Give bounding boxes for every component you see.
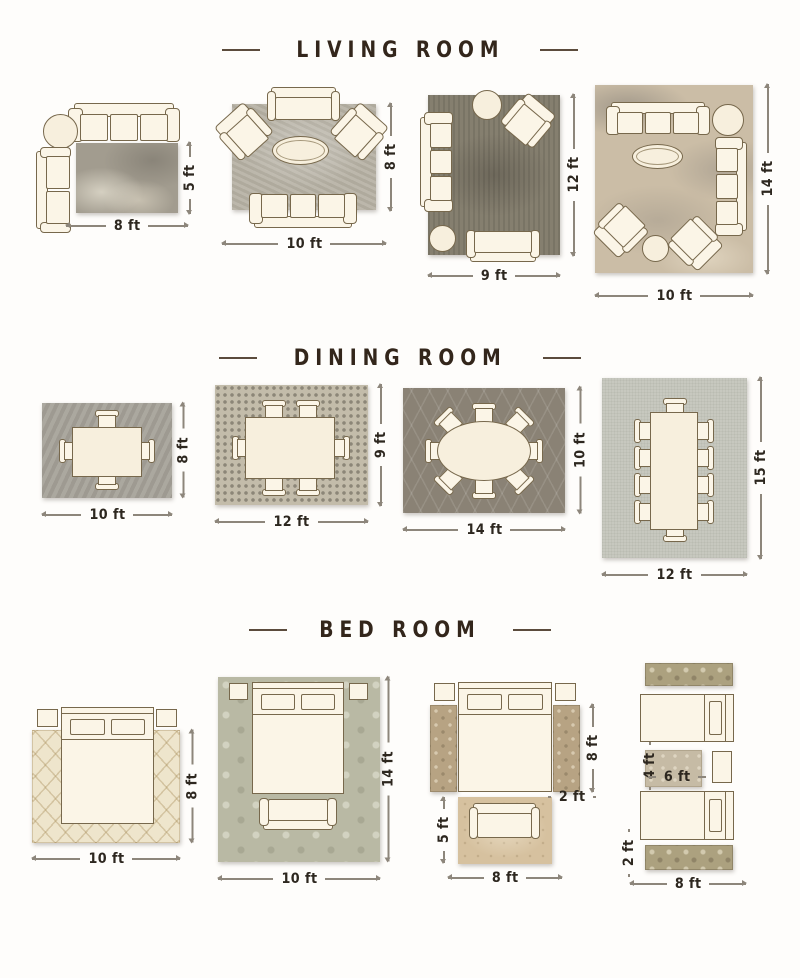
oval-coffee-table: [272, 136, 329, 165]
pillow: [301, 694, 335, 710]
bed-room-heading: BED ROOM: [319, 618, 480, 643]
width-dimension: 12 ft: [215, 512, 368, 532]
sofa: [714, 137, 747, 236]
twin-bed: [640, 791, 734, 840]
width-dimension: 14 ft: [403, 520, 565, 540]
headboard: [725, 695, 733, 741]
runner-width-dimension: 2 ft: [619, 837, 639, 877]
dining-table: [245, 417, 335, 479]
pillow: [508, 694, 543, 710]
pillow: [261, 694, 295, 710]
bed: [252, 682, 344, 794]
nightstand: [37, 709, 58, 727]
dining-table: [650, 412, 698, 530]
accent-rug-width-dimension: 6 ft: [648, 767, 706, 787]
bench: [469, 803, 540, 840]
height-dimension: 5 ft: [180, 142, 200, 214]
width-dimension: 10 ft: [222, 234, 386, 254]
sofa: [68, 103, 180, 143]
runner-length-dimension: 8 ft: [630, 874, 746, 894]
pillow: [467, 694, 502, 710]
title-dash-right: [513, 629, 551, 631]
height-dimension: 14 ft: [379, 677, 399, 862]
bed: [61, 707, 154, 824]
nightstand: [349, 683, 368, 700]
section-title-dining: DINING ROOM: [0, 344, 800, 372]
title-dash-right: [543, 357, 581, 359]
section-title-living: LIVING ROOM: [0, 36, 800, 64]
pillow: [70, 719, 105, 735]
nightstand: [555, 683, 576, 701]
height-dimension: 12 ft: [564, 94, 584, 256]
title-dash-left: [222, 49, 260, 51]
round-side-table: [712, 104, 744, 136]
width-dimension: 10 ft: [218, 869, 380, 889]
height-dimension: 8 ft: [174, 403, 194, 498]
height-dimension: 8 ft: [381, 103, 401, 211]
blanket-edge: [704, 792, 705, 839]
nightstand: [229, 683, 248, 700]
sofa: [420, 112, 454, 212]
title-dash-left: [219, 357, 257, 359]
height-dimension: 15 ft: [751, 377, 771, 559]
width-dimension: 10 ft: [42, 505, 172, 525]
loveseat: [466, 229, 540, 262]
blanket-edge: [704, 695, 705, 741]
living-room-heading: LIVING ROOM: [296, 38, 504, 63]
runner-length-dimension: 8 ft: [583, 704, 603, 792]
accent-rug-height-dimension: 5 ft: [434, 797, 454, 863]
sofa: [267, 87, 340, 122]
pillow: [709, 799, 722, 833]
rug-size-guide-infographic: LIVING ROOM 8 ft 5 ft: [0, 0, 800, 978]
sofa: [606, 102, 710, 136]
bed: [458, 682, 552, 792]
width-dimension: 10 ft: [595, 286, 753, 306]
runner-rug: [430, 705, 457, 792]
height-dimension: 9 ft: [371, 384, 391, 506]
round-side-table: [472, 90, 502, 120]
height-dimension: 14 ft: [758, 84, 778, 274]
nightstand: [156, 709, 177, 727]
nightstand: [434, 683, 455, 701]
title-dash-right: [540, 49, 578, 51]
oval-dining-table: [437, 421, 531, 481]
area-rug: [76, 143, 178, 213]
dining-room-heading: DINING ROOM: [294, 346, 507, 371]
height-dimension: 8 ft: [183, 730, 203, 843]
round-side-table: [642, 235, 669, 262]
runner-width-dimension: 2 ft: [548, 787, 590, 807]
twin-bed: [640, 694, 734, 742]
section-title-bedroom: BED ROOM: [0, 616, 800, 644]
accent-rug-width-dimension: 8 ft: [448, 868, 562, 888]
title-dash-left: [249, 629, 287, 631]
round-side-table: [43, 114, 78, 149]
dining-table: [72, 427, 142, 477]
width-dimension: 10 ft: [32, 849, 180, 869]
oval-coffee-table: [632, 144, 683, 169]
headboard: [725, 792, 733, 839]
nightstand: [712, 751, 732, 783]
width-dimension: 12 ft: [602, 565, 747, 585]
runner-rug: [553, 705, 580, 792]
runner-rug: [645, 845, 733, 870]
pillow: [709, 701, 722, 734]
width-dimension: 8 ft: [66, 216, 188, 236]
bench: [259, 797, 337, 830]
runner-rug: [645, 663, 733, 686]
round-side-table: [429, 225, 456, 252]
pillow: [111, 719, 146, 735]
sofa: [249, 192, 357, 228]
height-dimension: 10 ft: [571, 387, 591, 514]
width-dimension: 9 ft: [428, 266, 560, 286]
